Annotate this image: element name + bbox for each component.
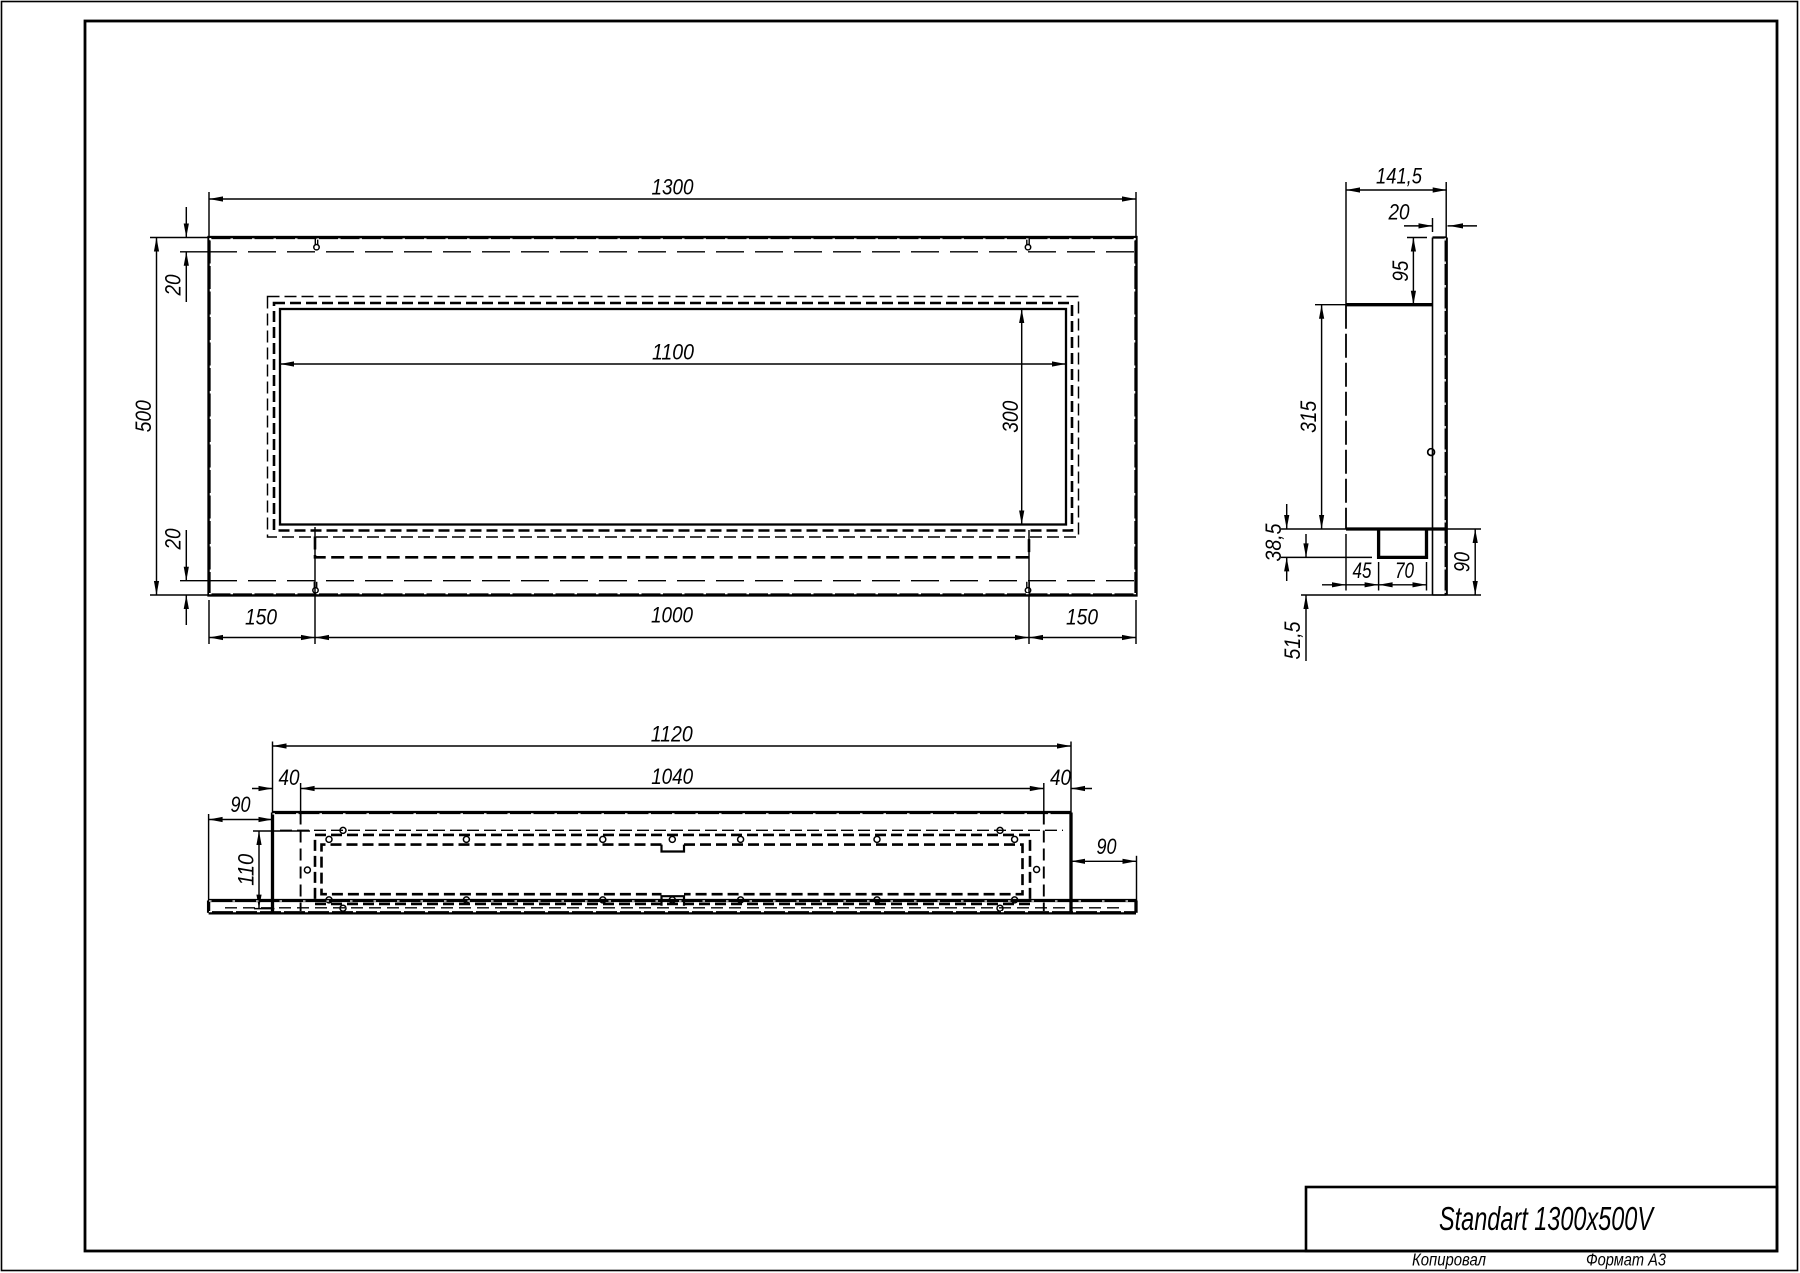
- svg-text:40: 40: [279, 765, 301, 790]
- svg-text:51,5: 51,5: [1280, 621, 1305, 660]
- svg-text:315: 315: [1296, 400, 1321, 433]
- svg-text:90: 90: [1450, 551, 1475, 572]
- svg-text:20: 20: [161, 274, 186, 297]
- svg-text:1100: 1100: [652, 340, 695, 365]
- svg-text:70: 70: [1395, 558, 1415, 583]
- svg-text:300: 300: [998, 400, 1023, 433]
- svg-text:95: 95: [1388, 260, 1413, 282]
- svg-text:45: 45: [1353, 558, 1373, 583]
- svg-text:38,5: 38,5: [1261, 523, 1286, 562]
- svg-text:Формат А3: Формат А3: [1586, 1250, 1666, 1270]
- svg-text:500: 500: [131, 400, 156, 433]
- svg-text:150: 150: [1066, 605, 1099, 630]
- svg-text:20: 20: [161, 528, 186, 551]
- svg-text:Standart 1300x500V: Standart 1300x500V: [1439, 1200, 1655, 1237]
- svg-text:20: 20: [1388, 200, 1411, 225]
- svg-text:150: 150: [245, 605, 278, 630]
- svg-text:40: 40: [1050, 765, 1072, 790]
- svg-text:Копировал: Копировал: [1412, 1250, 1486, 1270]
- svg-text:1120: 1120: [651, 722, 694, 747]
- svg-text:141,5: 141,5: [1376, 164, 1423, 189]
- svg-text:90: 90: [231, 792, 252, 817]
- svg-text:1040: 1040: [651, 764, 694, 789]
- svg-text:110: 110: [234, 853, 259, 886]
- svg-text:1000: 1000: [651, 603, 694, 628]
- svg-text:1300: 1300: [652, 175, 695, 200]
- svg-text:90: 90: [1097, 834, 1118, 859]
